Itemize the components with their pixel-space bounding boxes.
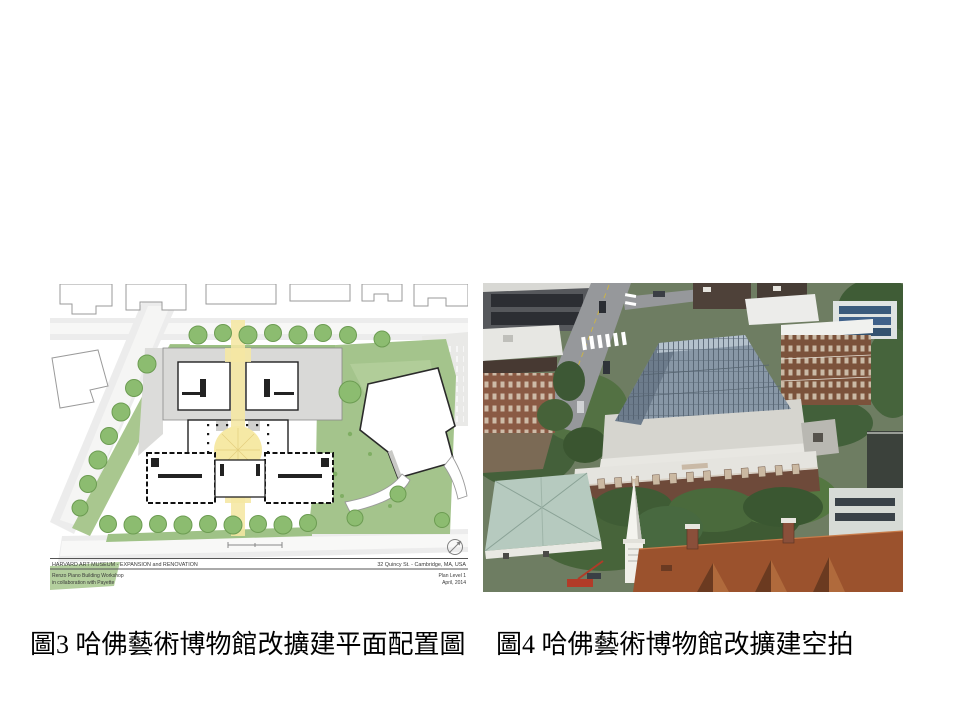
title-block-project: HARVARD ART MUSEUM - EXPANSION and RENOV…: [52, 562, 198, 568]
site-plan-figure: HARVARD ART MUSEUM - EXPANSION and RENOV…: [50, 284, 468, 600]
teal-roof-house: [485, 473, 602, 559]
title-block-collaboration: in collaboration with Payette: [52, 580, 114, 586]
title-block-architect: Renzo Piano Building Workshop: [52, 573, 124, 579]
caption-figure-3: 圖3 哈佛藝術博物館改擴建平面配置圖: [30, 628, 466, 662]
caption-figure-4: 圖4 哈佛藝術博物館改擴建空拍: [496, 628, 854, 662]
white-roof-building-left: [483, 325, 563, 361]
aerial-photo-image: [483, 283, 903, 592]
title-block-address: 32 Quincy St. - Cambridge, MA, USA: [377, 562, 466, 568]
slide: HARVARD ART MUSEUM - EXPANSION and RENOV…: [0, 0, 960, 720]
site-plan-image: HARVARD ART MUSEUM - EXPANSION and RENOV…: [50, 284, 468, 600]
title-block-date: April, 2014: [442, 580, 466, 586]
brick-dorm-right: [781, 319, 873, 405]
aerial-photo-figure: [483, 283, 903, 592]
title-block-sheet: Plan Level 1: [438, 573, 466, 579]
